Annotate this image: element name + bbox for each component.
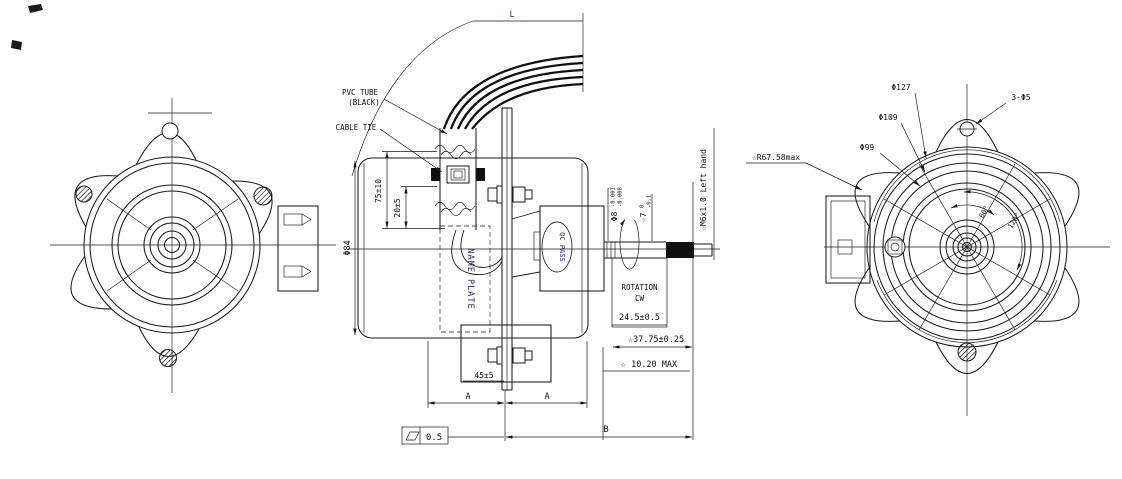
lead-length-label: L <box>509 10 514 20</box>
name-plate-label: NAME PLATE <box>465 248 475 309</box>
qc-pass-stamp: QC PASS <box>558 232 566 262</box>
mount-hole-hatched <box>254 187 272 205</box>
rotation-box: ROTATION CW 24.5±0.5 <box>612 258 667 327</box>
dim-dia-127: Φ127 <box>891 83 910 92</box>
flatness-frame: 0.5 <box>402 427 448 444</box>
name-plate-outline <box>440 226 490 332</box>
flatness-tolerance: 0.5 <box>426 433 442 443</box>
dim-shaft-ext: 24.5±0.5 <box>619 313 660 323</box>
thread-note: ☆M6x1.0 Left hand <box>699 149 708 231</box>
threaded-section <box>666 242 694 258</box>
pvc-tube-label2: (BLACK) <box>348 98 380 107</box>
right-front-view: Φ127 Φ109 Φ99 3-Φ5 ☆R67.58max 60° 120° <box>746 83 1110 416</box>
dim-overall-label: B <box>603 425 608 435</box>
terminal-block <box>826 196 870 283</box>
dim-tube-clamp: 20±5 <box>393 198 402 217</box>
dim-section-aa: A A <box>428 341 587 441</box>
dim-shaft-total: ☆37.75±0.25 <box>628 335 684 345</box>
dim-foot: 45±5 <box>474 371 493 380</box>
dim-dia-109: Φ109 <box>878 113 897 122</box>
section-label-left: A <box>465 392 470 402</box>
dim-body-dia-label: Φ84 <box>343 240 353 255</box>
rotation-label: ROTATION <box>621 283 657 292</box>
flatness-symbol-icon <box>406 432 419 440</box>
terminal-connector <box>278 206 318 291</box>
dim-body-diameter: Φ84 <box>343 161 355 335</box>
dim-overall-b: B <box>448 425 692 437</box>
dim-dia-99: Φ99 <box>860 143 875 152</box>
dim-tube: 75±10 20±5 <box>374 152 445 229</box>
angle-120-label: 120° <box>1006 212 1022 231</box>
mount-hole-hatched <box>958 343 976 361</box>
pvc-tube-label: PVC TUBE <box>342 88 379 97</box>
left-end-view <box>50 98 336 393</box>
mount-holes-label: 3-Φ5 <box>1011 93 1030 102</box>
middle-side-view: Φ84 NAME PLATE QC PASS <box>336 10 720 444</box>
cable-tie <box>431 166 485 183</box>
callout-mount-holes: 3-Φ5 <box>976 93 1031 124</box>
radius-note: ☆R67.58max <box>752 153 800 162</box>
shaft-flat-callout: ☆7 0 -0.1 <box>637 195 653 222</box>
engineering-drawing: Φ84 NAME PLATE QC PASS <box>0 0 1122 479</box>
callout-cable-tie: CABLE TIE <box>336 123 442 172</box>
mount-hole-hatched <box>160 350 177 367</box>
artifact-marks <box>11 4 43 50</box>
qc-stamp-oval <box>542 222 572 272</box>
drawing-sheet: Φ84 NAME PLATE QC PASS <box>0 0 1122 479</box>
callout-radius: ☆R67.58max <box>746 153 862 190</box>
cable-tie-label: CABLE TIE <box>336 123 377 132</box>
shaft-dia-callout: Φ8 -0.001 -0.008 <box>608 182 624 221</box>
dim-boss-max: ☆ 10.20 MAX <box>621 360 678 370</box>
mount-hole-hatched <box>76 186 92 202</box>
rotation-arrow <box>620 219 639 269</box>
rotation-cw-label: CW <box>635 294 645 303</box>
dim-tube-free: 75±10 <box>374 179 383 203</box>
mount-hole <box>162 123 178 139</box>
screw-detail <box>885 237 905 257</box>
section-label-right: A <box>544 392 549 402</box>
